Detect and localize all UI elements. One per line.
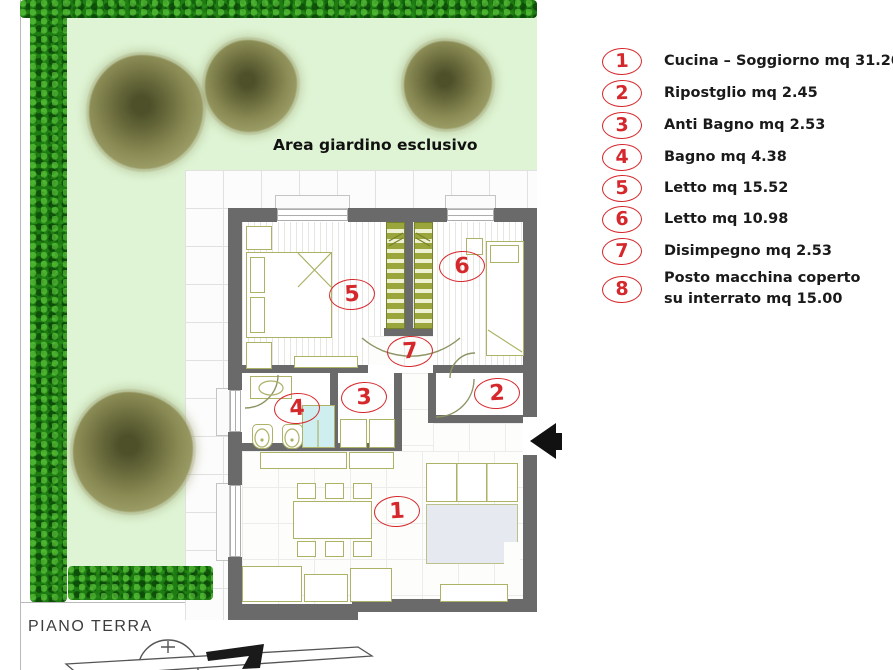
legend-item: 6 Letto mq 10.98 [602, 206, 788, 233]
window [447, 209, 494, 221]
kitchen-sink-unit [304, 574, 348, 602]
kitchen-cabinet [260, 452, 347, 469]
window-sill [216, 483, 230, 561]
legend-label: Ripostglio mq 2.45 [664, 83, 818, 104]
legend-item: 2 Ripostglio mq 2.45 [602, 80, 818, 107]
sofa-notch [504, 542, 520, 566]
wall-partition [428, 373, 436, 421]
legend-label: Anti Bagno mq 2.53 [664, 115, 825, 136]
legend-label: Letto mq 15.52 [664, 178, 788, 199]
legend-number-badge: 8 [602, 275, 643, 303]
hedge-top [20, 0, 537, 18]
legend-label: Posto macchina coperto su interrato mq 1… [664, 268, 861, 310]
legend-label-line1: Posto macchina coperto [664, 268, 861, 289]
chair [297, 483, 316, 499]
wall-partition [433, 365, 523, 373]
legend-number-badge: 4 [602, 143, 643, 171]
legend-number-badge: 3 [602, 111, 643, 139]
chair [325, 483, 344, 499]
chair [353, 541, 372, 557]
chair [297, 541, 316, 557]
site-plan-canvas: Area giardino esclusivo [0, 0, 893, 670]
legend-label: Cucina – Soggiorno mq 31.20 [664, 51, 893, 72]
pillow [250, 257, 265, 293]
wall-partition [428, 415, 523, 423]
chair [353, 483, 372, 499]
wall [523, 208, 537, 417]
wall [348, 208, 447, 222]
wardrobe [386, 222, 405, 329]
north-arrow-icon [66, 640, 372, 670]
legend-label-line2: su interrato mq 15.00 [664, 289, 861, 310]
room-number: 4 [289, 396, 306, 422]
pillow [250, 297, 265, 333]
sofa-backrest [426, 463, 518, 502]
floor-living [433, 423, 523, 451]
bidet [282, 424, 303, 449]
dining-table [293, 501, 372, 539]
kitchen-cabinet [349, 452, 394, 469]
wall [228, 604, 358, 620]
legend-label: Bagno mq 4.38 [664, 147, 787, 168]
wall-partition [384, 328, 433, 336]
pillow [490, 245, 519, 263]
legend-number-badge: 1 [602, 47, 643, 75]
legend-item: 5 Letto mq 15.52 [602, 175, 788, 202]
legend-number-badge: 2 [602, 79, 643, 107]
room-number: 7 [402, 339, 419, 365]
legend-item: 1 Cucina – Soggiorno mq 31.20 [602, 48, 893, 75]
wall [228, 208, 242, 390]
room-number: 1 [389, 499, 406, 525]
legend-number-badge: 6 [602, 205, 643, 233]
room-number: 3 [356, 385, 373, 411]
legend-label: Disimpegno mq 2.53 [664, 241, 832, 262]
nightstand [246, 226, 272, 250]
legend-number-badge: 5 [602, 174, 643, 202]
wall [523, 455, 537, 612]
room-number: 5 [344, 282, 361, 308]
window-sill [275, 195, 350, 209]
kitchen-counter [440, 584, 508, 602]
window-sill [445, 195, 496, 209]
legend-label: Letto mq 10.98 [664, 209, 788, 230]
washing-machine [340, 419, 367, 448]
room-number: 6 [454, 254, 471, 280]
legend-item: 7 Disimpegno mq 2.53 [602, 238, 832, 265]
window [230, 485, 241, 557]
window-sill [216, 388, 230, 436]
dresser [294, 356, 358, 368]
legend-item: 3 Anti Bagno mq 2.53 [602, 112, 825, 139]
wardrobe [414, 222, 433, 329]
kitchen-counter [242, 566, 302, 602]
hedge-bottom [68, 566, 213, 600]
hedge-left [30, 0, 67, 602]
room-number: 2 [489, 381, 506, 407]
garden-label: Area giardino esclusivo [273, 136, 478, 154]
chair [325, 541, 344, 557]
window [277, 209, 348, 221]
toilet [252, 424, 273, 449]
plan-title: PIANO TERRA [28, 618, 153, 636]
nightstand [246, 342, 272, 369]
legend-number-badge: 7 [602, 237, 643, 265]
property-boundary-left [20, 0, 21, 670]
cabinet [369, 419, 395, 448]
wall-partition [405, 222, 413, 330]
wall-partition [394, 373, 402, 451]
legend-item: 8 Posto macchina coperto su interrato mq… [602, 268, 861, 310]
wall [228, 432, 242, 485]
window [230, 390, 241, 432]
legend-item: 4 Bagno mq 4.38 [602, 144, 787, 171]
kitchen-stove [350, 568, 392, 602]
